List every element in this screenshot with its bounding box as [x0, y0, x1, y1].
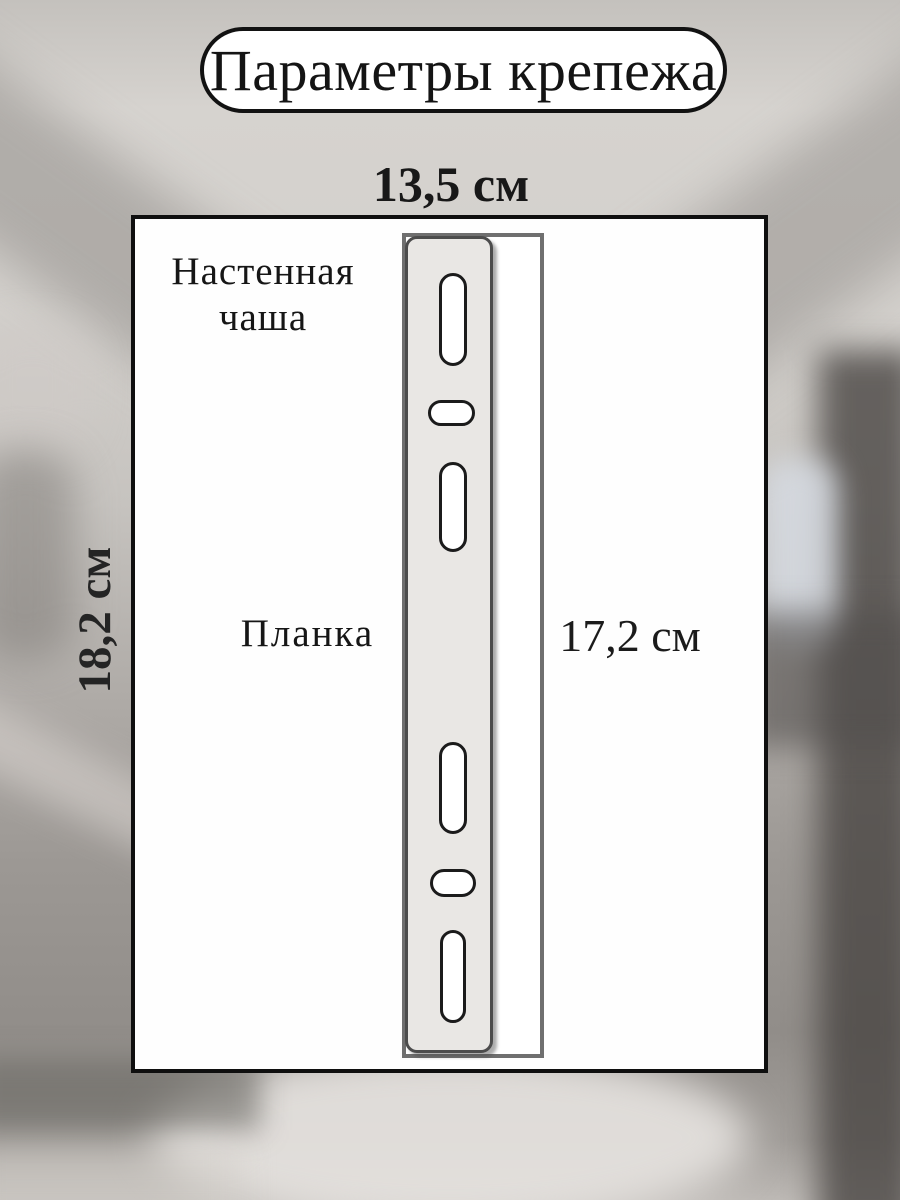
dimension-plate-height: 17,2 см: [540, 609, 720, 662]
plate-slot-vertical: [440, 930, 466, 1023]
title-pill: Параметры крепежа: [200, 27, 727, 113]
plate-slot-vertical: [439, 462, 467, 552]
plank-label: Планка: [220, 611, 395, 656]
dimension-width-top: 13,5 см: [300, 155, 602, 213]
infographic-canvas: Параметры крепежа 13,5 см 18,2 см Настен…: [0, 0, 900, 1200]
background-dark-column: [818, 350, 900, 1200]
plate-slot-horizontal: [428, 400, 475, 426]
background-right-dark-band: [745, 612, 900, 747]
mounting-plate: [405, 236, 493, 1053]
wall-cup-label: Настенная чаша: [143, 249, 383, 341]
background-floor-light-edge: [0, 1148, 240, 1200]
plate-slot-horizontal: [430, 869, 476, 897]
background-left-shadow: [0, 450, 75, 660]
page-title: Параметры крепежа: [210, 37, 717, 104]
plate-slot-vertical: [439, 273, 467, 366]
diagram-box: Настенная чаша Планка 17,2 см: [131, 215, 768, 1073]
background-left-highlight: [0, 325, 90, 450]
background-right-highlight: [760, 458, 838, 648]
plate-slot-vertical: [439, 742, 467, 834]
dimension-height-left: 18,2 см: [68, 547, 122, 694]
